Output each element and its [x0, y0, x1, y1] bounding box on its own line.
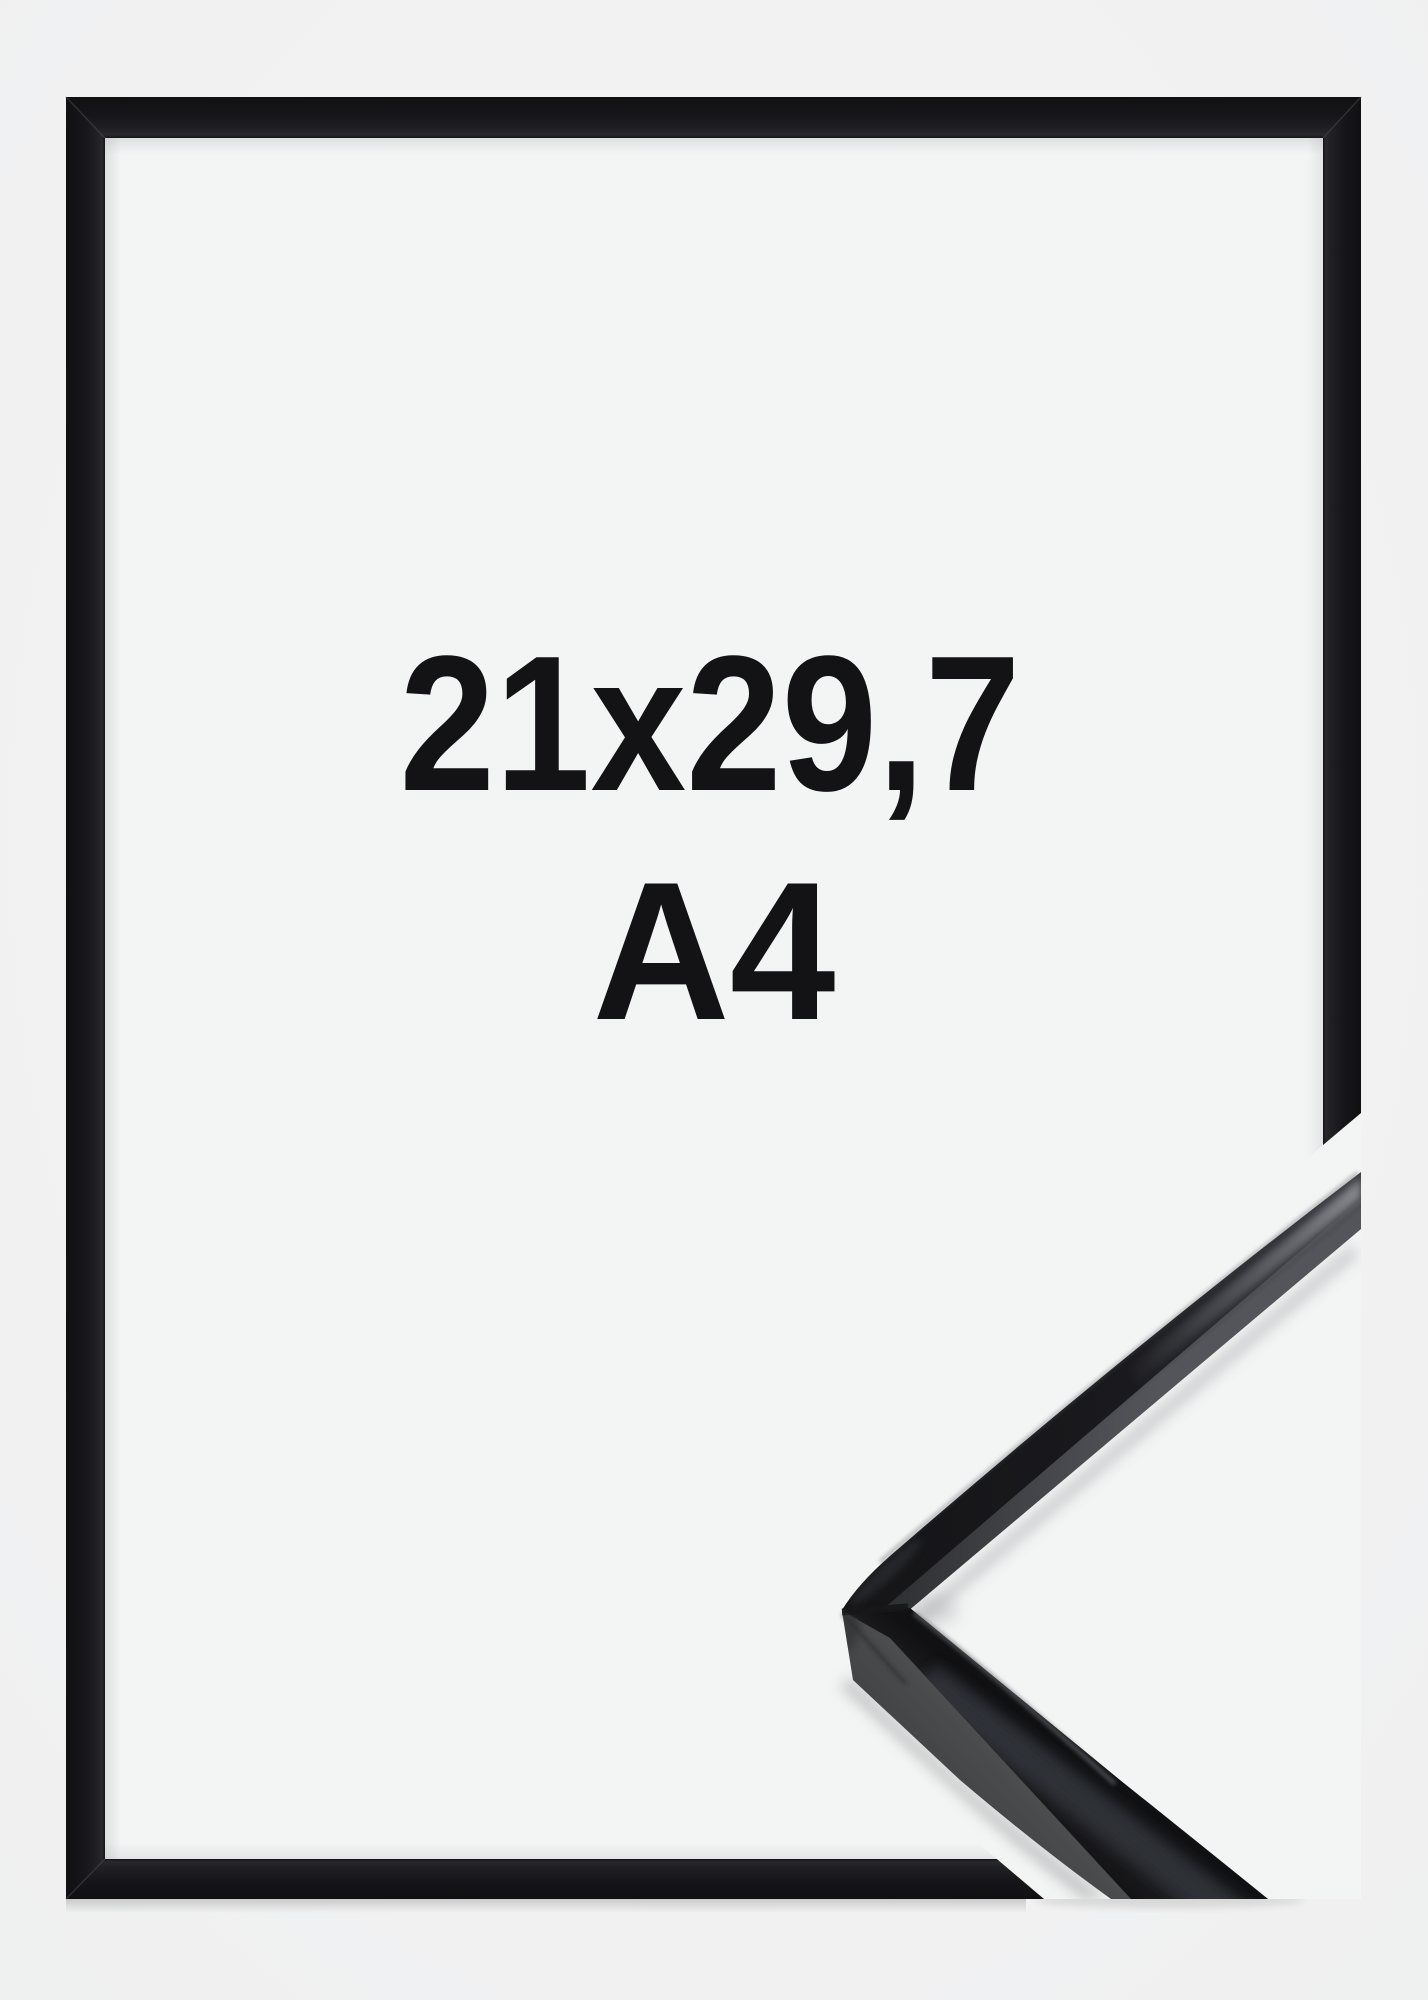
svg-text:21x29,7: 21x29,7 — [400, 615, 1021, 831]
svg-text:A4: A4 — [593, 841, 836, 1061]
